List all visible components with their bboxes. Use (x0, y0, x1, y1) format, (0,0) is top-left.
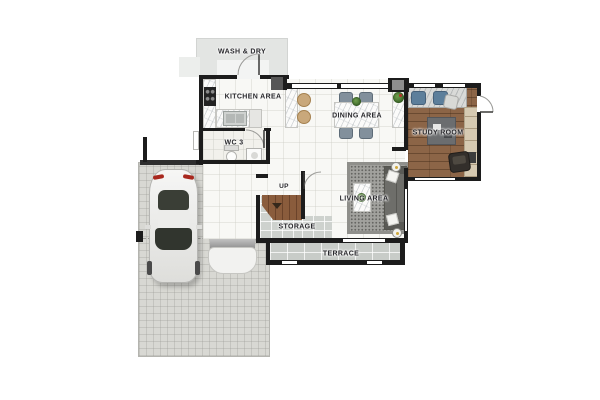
stairs-arrow-icon (272, 203, 282, 209)
wall (392, 147, 406, 151)
eave-overhang (179, 57, 200, 77)
window (343, 239, 385, 242)
front-door-opening (477, 96, 481, 112)
railing-opening (367, 261, 382, 264)
ceiling-light-icon (392, 228, 402, 238)
wall (266, 243, 270, 261)
room-label-wash-dry: WASH & DRY (218, 49, 266, 56)
room-label-dining: DINING AREA (332, 113, 382, 120)
railing-opening (282, 261, 297, 264)
door-opening (237, 75, 260, 79)
car-windshield (155, 228, 192, 250)
entry-step (392, 80, 404, 90)
car-mirror (196, 225, 202, 229)
wall (404, 86, 408, 150)
room-label-terrace: TERRACE (323, 251, 359, 258)
kitchen-appliance (249, 109, 262, 128)
dining-chair (359, 127, 373, 139)
bar-counter (285, 88, 298, 128)
window (415, 178, 455, 180)
wash-dry-recess (217, 60, 269, 76)
car-white (149, 169, 198, 283)
window (405, 189, 407, 231)
study-armchair (448, 151, 472, 174)
plant-icon (352, 97, 361, 106)
car-roof (158, 210, 189, 229)
floor-plan: WASH & DRY KITCHEN AREA WC 3 DINING AREA… (0, 0, 600, 400)
door-opening (245, 128, 264, 131)
wall (256, 238, 334, 243)
garage-post (136, 231, 143, 242)
window (414, 84, 435, 87)
wall (404, 168, 408, 181)
room-label-wc3: WC 3 (225, 140, 244, 147)
wall-post (287, 83, 292, 89)
study-chair-white (443, 94, 460, 111)
plant-icon (393, 92, 404, 103)
room-label-study: STUDY ROOM (413, 130, 464, 137)
window (443, 84, 465, 87)
room-label-storage: STORAGE (279, 224, 316, 231)
wall (199, 75, 203, 165)
wall (256, 174, 268, 178)
room-label-up: UP (279, 184, 289, 191)
ceiling-light-icon (391, 162, 401, 172)
car-wheel (195, 261, 200, 275)
suv-hood (208, 247, 257, 274)
car-rear-window (158, 190, 189, 210)
wall (266, 128, 270, 164)
car-wheel (147, 261, 152, 275)
dining-chair (339, 127, 353, 139)
garage-top-wall (140, 160, 200, 165)
car-mirror (145, 225, 151, 229)
stove-icon (204, 87, 216, 106)
kitchen-sink-icon (223, 111, 247, 126)
wall (256, 195, 260, 243)
wall (143, 137, 147, 162)
bar-stool (297, 93, 311, 107)
room-label-living: LIVING AREA (340, 196, 389, 203)
wall-post (337, 83, 341, 89)
room-label-kitchen: KITCHEN AREA (225, 94, 282, 101)
wall (196, 160, 270, 164)
study-chair (411, 91, 426, 105)
wall (301, 171, 305, 219)
bar-stool (297, 110, 311, 124)
